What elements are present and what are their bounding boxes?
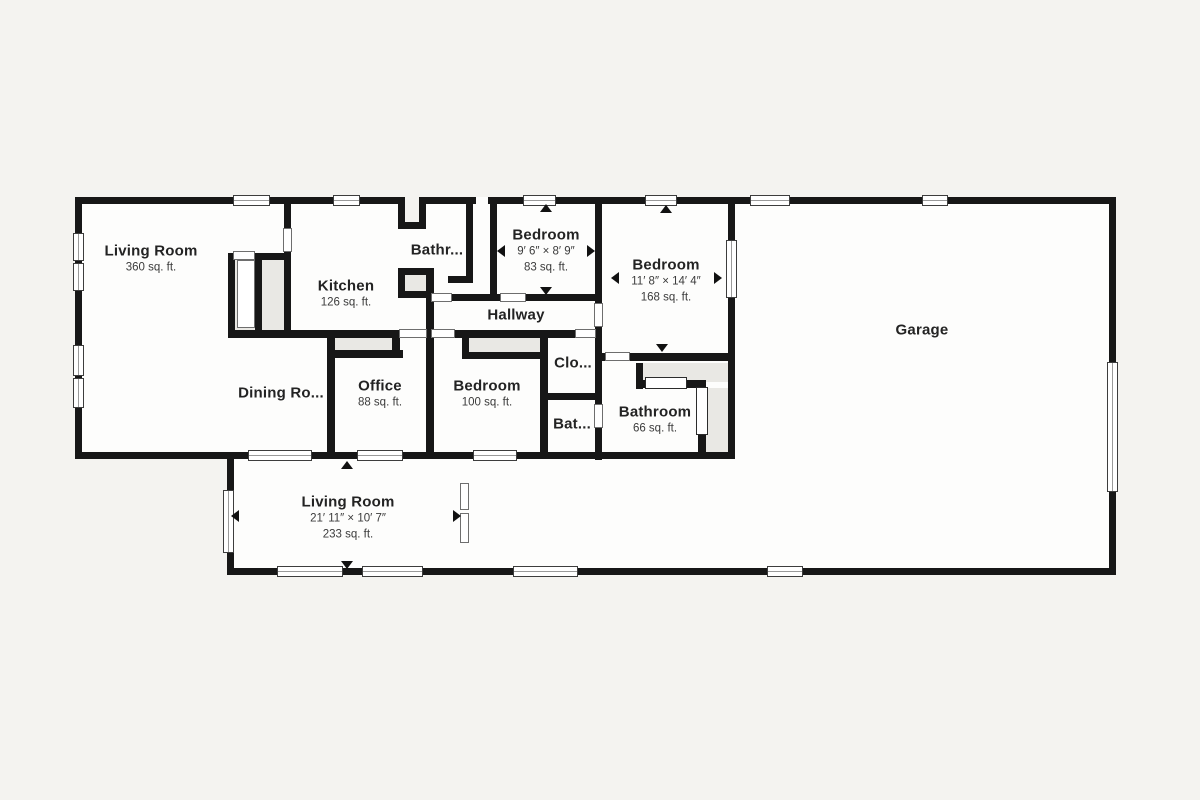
room-dimensions: 11′ 8″ × 14′ 4″ bbox=[631, 274, 700, 290]
room-label-office: Office 88 sq. ft. bbox=[358, 378, 402, 411]
window bbox=[73, 345, 84, 376]
room-name: Dining Ro... bbox=[238, 385, 324, 402]
wall bbox=[426, 268, 434, 338]
door-opening bbox=[431, 293, 452, 302]
dimension-arrow-left-icon bbox=[611, 272, 619, 284]
room-name: Bathr... bbox=[411, 242, 463, 259]
window bbox=[767, 566, 803, 577]
room-name: Bat... bbox=[553, 416, 591, 433]
room-label-bathroom-main: Bathroom 66 sq. ft. bbox=[619, 404, 691, 437]
floor-garage bbox=[732, 201, 1112, 571]
room-name: Living Room bbox=[104, 243, 197, 260]
door-opening bbox=[500, 293, 526, 302]
wall bbox=[548, 393, 602, 400]
room-name: Office bbox=[358, 378, 402, 395]
door-opening bbox=[460, 483, 469, 510]
wall bbox=[284, 204, 291, 335]
shower-fixture bbox=[696, 387, 708, 435]
bathtub-fixture bbox=[645, 377, 687, 389]
door-opening bbox=[594, 404, 603, 428]
room-name: Bathroom bbox=[619, 404, 691, 421]
room-label-living-room-main: Living Room 360 sq. ft. bbox=[104, 243, 197, 276]
room-area: 100 sq. ft. bbox=[453, 395, 520, 411]
door-opening bbox=[594, 303, 603, 327]
dimension-arrow-right-icon bbox=[587, 245, 595, 257]
shower-fill-right bbox=[706, 388, 728, 459]
window bbox=[726, 240, 737, 298]
wall bbox=[228, 330, 400, 338]
window bbox=[513, 566, 578, 577]
room-area: 66 sq. ft. bbox=[619, 421, 691, 437]
room-name: Living Room bbox=[301, 494, 394, 511]
door-opening bbox=[431, 329, 455, 338]
wall bbox=[426, 338, 434, 459]
wall bbox=[490, 204, 497, 301]
window bbox=[473, 450, 517, 461]
door-opening bbox=[605, 352, 630, 361]
wall bbox=[75, 452, 735, 459]
wall bbox=[255, 258, 262, 330]
room-label-bathroom-top: Bathr... bbox=[411, 242, 463, 259]
room-name: Bedroom bbox=[512, 227, 579, 244]
room-label-hallway: Hallway bbox=[487, 307, 544, 324]
dimension-arrow-left-icon bbox=[231, 510, 239, 522]
wall bbox=[398, 291, 433, 298]
wall bbox=[228, 253, 235, 335]
door-opening bbox=[399, 329, 427, 338]
room-dimensions: 9′ 6″ × 8′ 9″ bbox=[512, 244, 579, 260]
dimension-arrow-down-icon bbox=[341, 561, 353, 569]
room-name: Clo... bbox=[554, 355, 592, 372]
room-label-bedroom-large: Bedroom 11′ 8″ × 14′ 4″ 168 sq. ft. bbox=[631, 257, 700, 306]
wall bbox=[462, 352, 548, 359]
window bbox=[233, 195, 270, 206]
room-label-living-room-lower: Living Room 21′ 11″ × 10′ 7″ 233 sq. ft. bbox=[301, 494, 394, 543]
window bbox=[750, 195, 790, 206]
wall bbox=[488, 197, 1116, 204]
room-label-garage: Garage bbox=[896, 322, 949, 339]
window bbox=[248, 450, 312, 461]
wall bbox=[227, 568, 1116, 575]
room-area: 126 sq. ft. bbox=[318, 295, 374, 311]
wall bbox=[419, 197, 476, 204]
room-label-dining-room: Dining Ro... bbox=[238, 385, 324, 402]
dimension-arrow-down-icon bbox=[656, 344, 668, 352]
window bbox=[73, 378, 84, 408]
room-label-bathroom-hall: Bat... bbox=[553, 416, 591, 433]
room-area: 88 sq. ft. bbox=[358, 395, 402, 411]
wall bbox=[466, 204, 473, 283]
window bbox=[73, 233, 84, 261]
room-name: Hallway bbox=[487, 307, 544, 324]
window bbox=[333, 195, 360, 206]
room-dimensions: 21′ 11″ × 10′ 7″ bbox=[301, 511, 394, 527]
door-opening bbox=[460, 513, 469, 543]
dimension-arrow-down-icon bbox=[540, 287, 552, 295]
closet-fill-bath-top bbox=[405, 275, 426, 291]
room-name: Garage bbox=[896, 322, 949, 339]
room-area: 233 sq. ft. bbox=[301, 527, 394, 543]
room-label-kitchen: Kitchen 126 sq. ft. bbox=[318, 278, 374, 311]
dimension-arrow-up-icon bbox=[660, 205, 672, 213]
room-label-closet: Clo... bbox=[554, 355, 592, 372]
window bbox=[357, 450, 403, 461]
wall bbox=[392, 335, 400, 358]
door-opening bbox=[575, 329, 596, 338]
dimension-arrow-up-icon bbox=[341, 461, 353, 469]
door-opening bbox=[237, 260, 255, 328]
dimension-arrow-right-icon bbox=[453, 510, 461, 522]
room-label-bedroom-small: Bedroom 9′ 6″ × 8′ 9″ 83 sq. ft. bbox=[512, 227, 579, 276]
room-name: Kitchen bbox=[318, 278, 374, 295]
room-area: 360 sq. ft. bbox=[104, 260, 197, 276]
dimension-arrow-right-icon bbox=[714, 272, 722, 284]
room-area: 168 sq. ft. bbox=[631, 290, 700, 306]
wall bbox=[398, 268, 433, 275]
door-opening bbox=[233, 251, 255, 260]
room-name: Bedroom bbox=[631, 257, 700, 274]
window bbox=[1107, 362, 1118, 492]
window bbox=[277, 566, 343, 577]
wall bbox=[448, 276, 473, 283]
room-label-bedroom-middle: Bedroom 100 sq. ft. bbox=[453, 378, 520, 411]
door-opening bbox=[283, 228, 292, 252]
window bbox=[73, 263, 84, 291]
room-name: Bedroom bbox=[453, 378, 520, 395]
room-area: 83 sq. ft. bbox=[512, 260, 579, 276]
window bbox=[362, 566, 423, 577]
wall-gap bbox=[476, 197, 488, 205]
dimension-arrow-up-icon bbox=[540, 204, 552, 212]
floorplan-canvas: Living Room 360 sq. ft. Kitchen 126 sq. … bbox=[0, 0, 1200, 800]
wall bbox=[540, 330, 548, 459]
dimension-arrow-left-icon bbox=[497, 245, 505, 257]
window bbox=[922, 195, 948, 206]
